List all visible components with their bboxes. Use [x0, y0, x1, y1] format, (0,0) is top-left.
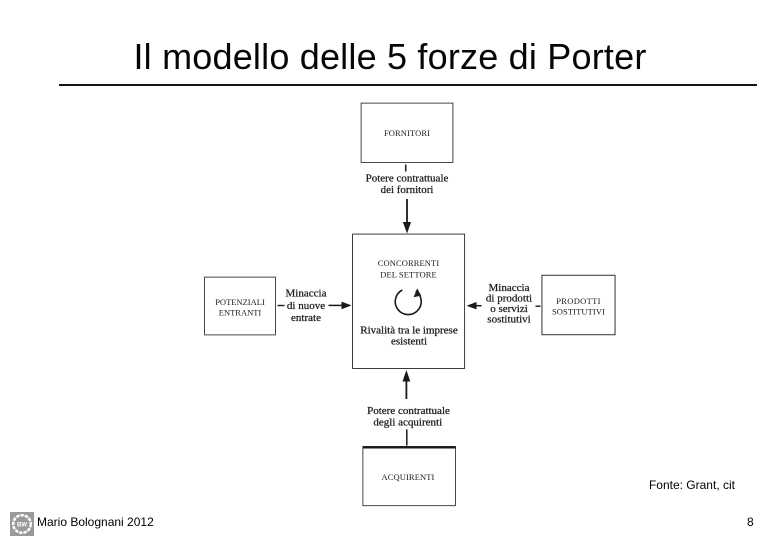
- svg-text:POTENZIALI: POTENZIALI: [215, 297, 265, 307]
- svg-text:FORNITORI: FORNITORI: [384, 128, 430, 138]
- svg-text:esistenti: esistenti: [391, 336, 427, 348]
- svg-text:sostitutivi: sostitutivi: [487, 313, 530, 325]
- svg-text:degli acquirenti: degli acquirenti: [373, 416, 442, 428]
- svg-text:di nuove: di nuove: [287, 300, 325, 312]
- svg-text:Potere contrattuale: Potere contrattuale: [367, 405, 450, 417]
- svg-text:CONCORRENTI: CONCORRENTI: [378, 258, 440, 268]
- svg-text:ACQUIRENTI: ACQUIRENTI: [382, 472, 435, 482]
- svg-text:BW: BW: [17, 523, 27, 529]
- svg-text:Minaccia: Minaccia: [286, 287, 327, 299]
- svg-text:Potere contrattuale: Potere contrattuale: [366, 173, 449, 185]
- svg-text:ENTRANTI: ENTRANTI: [219, 308, 262, 318]
- svg-text:dei fornitori: dei fornitori: [381, 184, 434, 196]
- svg-text:entrate: entrate: [291, 312, 321, 324]
- svg-text:DEL SETTORE: DEL SETTORE: [380, 270, 437, 280]
- svg-text:SOSTITUTIVI: SOSTITUTIVI: [552, 307, 605, 317]
- svg-text:PRODOTTI: PRODOTTI: [556, 296, 600, 306]
